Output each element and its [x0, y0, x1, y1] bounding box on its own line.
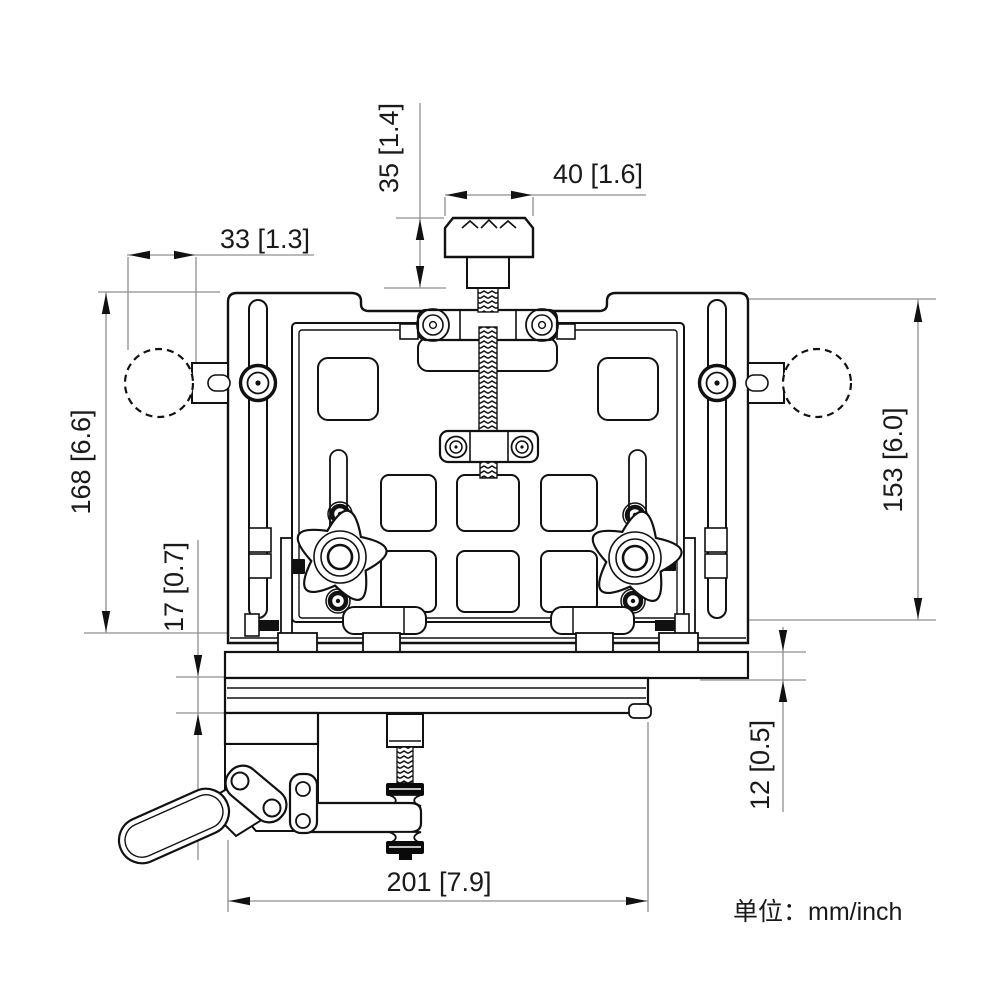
screw-thread-main	[479, 327, 497, 431]
dim-knob-height: 35 [1.4]	[374, 103, 404, 193]
base	[225, 652, 748, 718]
traveling-block	[440, 431, 538, 462]
pivot-screw-right	[700, 366, 735, 401]
dim-overall-height: 168 [6.6]	[66, 409, 96, 514]
pivot-screw-left	[241, 366, 276, 401]
ball-knob-right	[783, 349, 851, 417]
spindle-thread	[397, 747, 413, 783]
dim-knob-width: 40 [1.6]	[553, 159, 643, 189]
screw-thread-lower	[480, 462, 497, 478]
technical-drawing-page: 35 [1.4] 40 [1.6] 33 [1.3] 168 [6.6] 17 …	[0, 0, 1000, 1000]
base-plate	[225, 652, 748, 678]
drawing-canvas: 35 [1.4] 40 [1.6] 33 [1.3] 168 [6.6] 17 …	[0, 0, 1000, 1000]
ball-knob-left	[125, 349, 193, 417]
device	[112, 218, 851, 871]
units-note: 单位：mm/inch	[733, 898, 902, 926]
dim-plate-thickness: 12 [0.5]	[745, 720, 775, 810]
spindle-block	[387, 714, 423, 747]
dim-ball-diameter: 33 [1.3]	[220, 224, 310, 254]
base-rail	[225, 678, 648, 713]
dim-rail-thickness: 17 [0.7]	[159, 542, 189, 632]
toggle-handle	[112, 781, 237, 870]
screw-thread-upper	[478, 288, 498, 312]
clamp-arm	[310, 803, 421, 832]
jaw-plate-left	[281, 538, 292, 637]
dim-base-width: 201 [7.9]	[386, 867, 491, 897]
dim-frame-height: 153 [6.0]	[878, 407, 908, 512]
top-knob	[445, 218, 533, 288]
rail-foot	[629, 704, 651, 718]
toggle-clamp	[112, 713, 424, 871]
